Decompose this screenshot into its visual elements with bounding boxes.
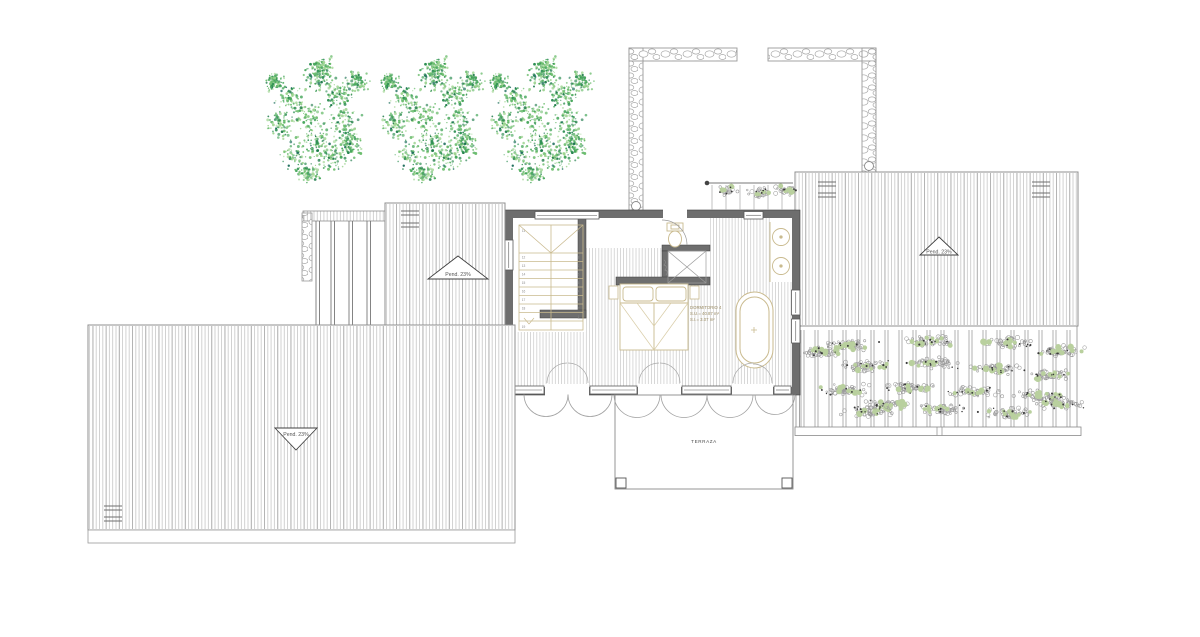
terrace: TERRAZA [524,395,795,490]
toilet [667,223,683,247]
house: 987654321111213141516171819 [505,210,801,397]
room-name: DORMITORIO 4 [690,305,722,310]
nightstand [690,286,699,299]
room-si: S.I.= 3.07 m² [690,317,715,322]
room-su: S.U.= 40.87 m² [690,311,720,316]
tree [489,55,594,183]
pergola-beams [316,221,371,326]
slope-label: Pend. 23% [445,272,471,278]
stair-step-number: 7 [578,264,580,268]
slope-label: Pend. 23% [283,432,309,438]
entrance-pergola [705,181,797,210]
stair-step-number: 14 [522,273,526,277]
left-pergola [302,211,385,326]
terrace-column [616,478,626,488]
terrace-column [782,478,792,488]
wall-end-post [632,202,641,211]
bathtub [736,292,773,368]
stair-step-number: 2 [578,307,580,311]
stair-step-number: 13 [522,264,526,268]
stair-step-number: 18 [522,307,526,311]
stair-step-number: 9 [578,229,580,233]
trees-group [265,55,594,183]
stair-step-number: 3 [578,298,580,302]
pergola-footing [795,427,1081,436]
tree [265,55,370,183]
vine-plants [797,335,1086,420]
floor-plan-drawing: Pend. 23% [0,0,1200,637]
right-roof: Pend. 23% [795,172,1078,326]
stair-step-number: 17 [522,298,526,302]
terrace-label: TERRAZA [691,439,717,444]
stair-step-number: 6 [578,273,580,277]
stair-step-number: 8 [578,256,580,260]
slope-label: Pend. 23% [926,250,952,256]
stair-step-number: 11 [522,229,526,233]
stair-step-number: 15 [522,281,526,285]
middle-roof: Pend. 23% [385,203,505,327]
stair-step-number: 19 [522,325,526,329]
nightstand [609,286,618,299]
roof-gutter [88,530,515,543]
stair-step-number: 5 [578,281,580,285]
tree [380,55,485,183]
wall-end-post [865,162,874,171]
stair-step-number: 16 [522,290,526,294]
left-roof: Pend. 23% [88,325,515,543]
stair-step-number: 12 [522,256,526,260]
stair-step-number: 4 [578,290,580,294]
stair-step-number: 1 [578,315,580,319]
bed [620,284,688,350]
vine-plants [719,184,797,199]
vine-pergola [795,326,1086,436]
floor-plan-sheet: Pend. 23% [0,0,1200,637]
